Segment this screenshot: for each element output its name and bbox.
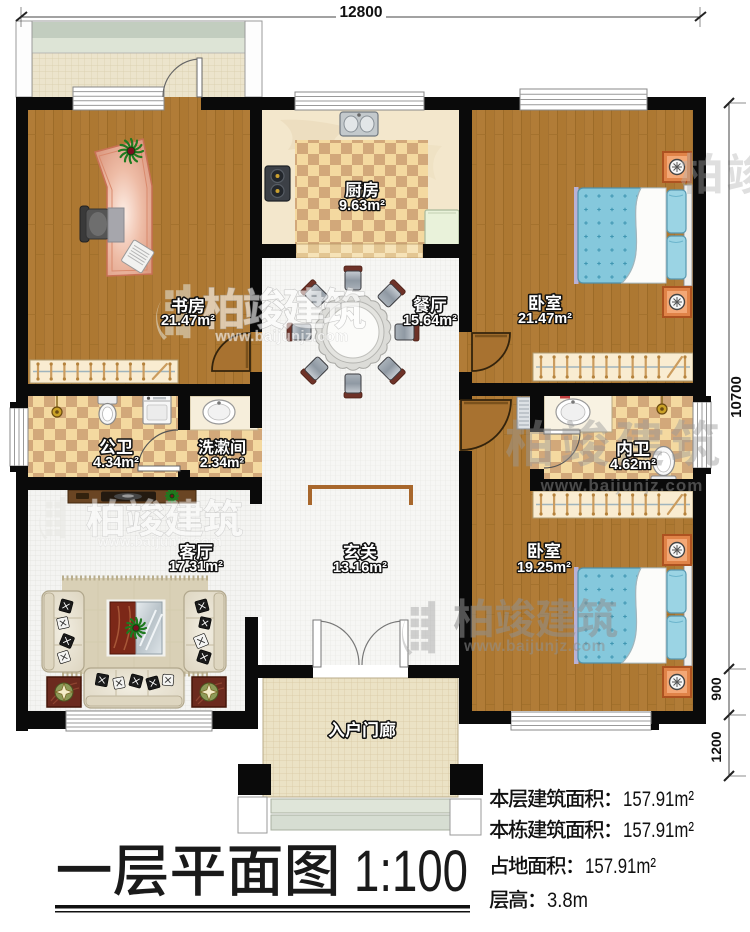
svg-text:19.25m²: 19.25m²	[517, 560, 571, 576]
svg-text:9.63m²: 9.63m²	[339, 198, 385, 214]
svg-text:17.31m²: 17.31m²	[169, 559, 223, 575]
svg-text:13.16m²: 13.16m²	[333, 560, 387, 576]
svg-text:157.91m²: 157.91m²	[623, 787, 694, 811]
svg-text:4.34m²: 4.34m²	[93, 455, 139, 471]
svg-text:www.baijunjz.com: www.baijunjz.com	[214, 329, 348, 345]
svg-text:21.47m²: 21.47m²	[518, 311, 572, 327]
svg-text:157.91m²: 157.91m²	[585, 854, 656, 878]
svg-text:900: 900	[708, 677, 724, 701]
svg-text:1200: 1200	[708, 731, 724, 762]
svg-text:4.62m²: 4.62m²	[610, 457, 656, 473]
svg-text:2.34m²: 2.34m²	[200, 454, 245, 470]
svg-text:21.47m²: 21.47m²	[161, 313, 215, 329]
svg-text:12800: 12800	[339, 4, 382, 21]
svg-text:15.64m²: 15.64m²	[403, 313, 457, 329]
svg-text:10700: 10700	[728, 376, 745, 418]
svg-text:www.baijunjz.com: www.baijunjz.com	[463, 638, 606, 655]
svg-text:www.baijunjz.com: www.baijunjz.com	[540, 476, 704, 495]
svg-text:157.91m²: 157.91m²	[623, 818, 694, 842]
svg-text:1:100: 1:100	[354, 839, 468, 904]
svg-text:3.8m: 3.8m	[547, 888, 588, 912]
